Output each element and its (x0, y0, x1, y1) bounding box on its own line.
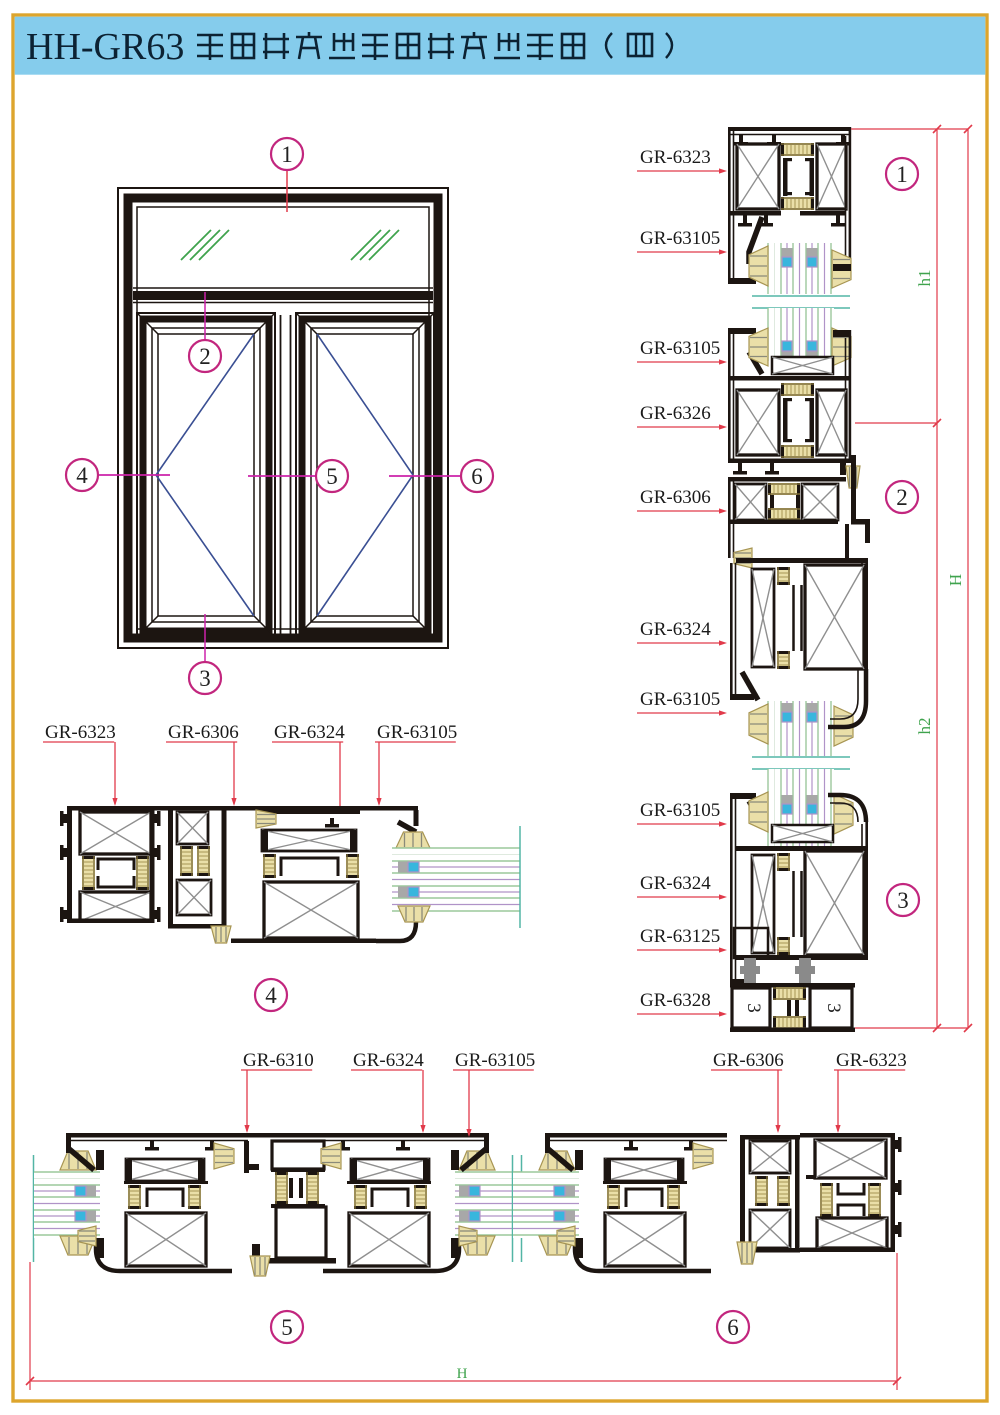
svg-text:GR-6323: GR-6323 (640, 147, 711, 168)
svg-text:GR-6324: GR-6324 (640, 873, 711, 894)
svg-text:4: 4 (265, 983, 277, 1008)
svg-text:GR-63125: GR-63125 (640, 926, 720, 947)
svg-text:5: 5 (281, 1315, 293, 1340)
svg-text:6: 6 (471, 464, 483, 489)
svg-text:H: H (946, 574, 965, 586)
svg-text:HH-GR63: HH-GR63 (26, 26, 184, 68)
svg-text:GR-6306: GR-6306 (640, 487, 711, 508)
svg-text:GR-63105: GR-63105 (640, 228, 720, 249)
svg-text:2: 2 (896, 485, 908, 510)
svg-text:GR-6324: GR-6324 (274, 722, 345, 743)
svg-text:GR-6306: GR-6306 (713, 1050, 784, 1071)
svg-text:3: 3 (897, 888, 909, 913)
svg-text:h1: h1 (915, 270, 934, 287)
svg-text:GR-6328: GR-6328 (640, 990, 711, 1011)
svg-text:GR-6323: GR-6323 (45, 722, 116, 743)
svg-text:GR-6326: GR-6326 (640, 403, 711, 424)
svg-text:GR-63105: GR-63105 (640, 800, 720, 821)
svg-text:3: 3 (743, 1003, 764, 1013)
svg-text:3: 3 (199, 666, 211, 691)
svg-text:2: 2 (199, 344, 211, 369)
svg-text:GR-63105: GR-63105 (640, 689, 720, 710)
svg-text:h2: h2 (915, 718, 934, 735)
svg-text:GR-6323: GR-6323 (836, 1050, 907, 1071)
svg-text:H: H (457, 1366, 468, 1382)
svg-text:GR-6324: GR-6324 (353, 1050, 424, 1071)
svg-text:GR-63105: GR-63105 (455, 1050, 535, 1071)
svg-text:GR-6310: GR-6310 (243, 1050, 314, 1071)
svg-text:6: 6 (727, 1315, 739, 1340)
svg-text:1: 1 (281, 142, 293, 167)
svg-text:3: 3 (823, 1003, 844, 1013)
svg-text:4: 4 (76, 463, 88, 488)
svg-text:5: 5 (326, 464, 338, 489)
svg-text:GR-6306: GR-6306 (168, 722, 239, 743)
svg-text:GR-6324: GR-6324 (640, 619, 711, 640)
svg-text:GR-63105: GR-63105 (640, 338, 720, 359)
svg-text:GR-63105: GR-63105 (377, 722, 457, 743)
svg-text:1: 1 (896, 162, 908, 187)
